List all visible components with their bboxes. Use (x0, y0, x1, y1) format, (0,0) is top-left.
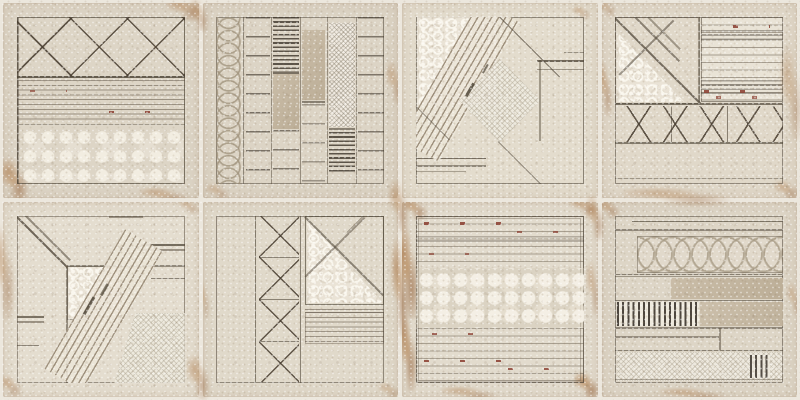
barcode-h-patch (416, 236, 584, 244)
hline-patch (109, 216, 143, 217)
specks-patch (429, 253, 469, 255)
vline-patch (271, 17, 272, 185)
hstripes-patch (17, 80, 185, 124)
tile-pattern-area (615, 216, 783, 384)
hline-patch (17, 345, 39, 347)
vline-patch (255, 216, 257, 384)
rust-patch (602, 3, 618, 17)
vline-patch (300, 216, 302, 384)
grout-rust-patch (187, 352, 211, 400)
rust-patch (602, 58, 614, 117)
hline-patch (615, 274, 783, 276)
hline-patch (259, 299, 299, 301)
dashes-patch (358, 17, 384, 185)
vline-patch (327, 17, 328, 185)
barcode-v-patch (617, 302, 699, 326)
hline-patch (416, 165, 487, 167)
tile-pattern-area (17, 216, 185, 384)
patchwork-tile-collage (0, 0, 800, 400)
specks-patch (508, 368, 575, 370)
taupe-patch (700, 302, 783, 326)
hline-patch (17, 321, 44, 322)
hline-patch (416, 158, 487, 160)
hline-patch (615, 229, 783, 231)
vline-patch (719, 328, 720, 350)
barcode-h-patch (273, 17, 298, 72)
hline-patch (615, 103, 783, 105)
frame-patch (701, 17, 783, 103)
tile-cross-column-lace (203, 202, 399, 397)
tile-triangle-lace-crosses (602, 3, 798, 198)
hline-patch (259, 257, 299, 259)
tile-crosses-stripes-dots (3, 3, 199, 198)
dashes-patch (246, 17, 270, 185)
rust-patch (441, 385, 500, 397)
hline-patch (329, 128, 355, 129)
vline-patch (727, 106, 728, 143)
vline-patch (356, 17, 357, 185)
hstripes-sparse-patch (416, 328, 584, 383)
hline-patch (17, 124, 185, 125)
mesh-patch (329, 23, 355, 127)
specks-patch (30, 90, 67, 92)
vesica-v-patch (216, 17, 241, 185)
specks-patch (424, 222, 508, 224)
specks-patch (424, 360, 516, 363)
grout-rust-patch (0, 220, 16, 320)
tile-pattern-area (17, 17, 185, 185)
hline-patch (151, 278, 185, 280)
rust-patch (386, 58, 398, 105)
dots-patch (18, 126, 183, 182)
hline-patch (615, 336, 719, 338)
dots-big-patch (416, 268, 584, 328)
hline-patch (537, 69, 584, 70)
tile-pattern-area (416, 17, 584, 185)
rust-patch (203, 280, 211, 319)
tile-pattern-area (416, 216, 584, 384)
hline-patch (615, 142, 783, 144)
dashes-patch (273, 130, 298, 185)
tile-stripes-dots-grunge (402, 202, 598, 397)
rust-patch (787, 280, 797, 315)
taupe-patch (273, 74, 298, 129)
specks-patch (517, 231, 576, 233)
frame-patch (637, 236, 783, 273)
barcode-h-patch (329, 132, 355, 172)
hline-patch (17, 76, 185, 78)
hline-patch (17, 316, 44, 318)
rust-patch (179, 202, 199, 214)
hline-patch (305, 309, 384, 310)
rust-patch (586, 257, 598, 316)
hline-patch (632, 221, 783, 223)
tile-pattern-area (216, 216, 384, 384)
hline-patch (615, 379, 783, 380)
rust-patch (206, 182, 229, 198)
hline-patch (615, 327, 783, 329)
grout-rust-patch (189, 0, 210, 32)
hline-patch (615, 350, 783, 352)
hline-patch (259, 341, 299, 343)
tile-pattern-area (216, 17, 384, 185)
frame-patch (305, 216, 384, 305)
hline-patch (615, 300, 783, 301)
hline-patch (615, 178, 783, 179)
tile-vertical-strips (203, 3, 399, 198)
tile-cube-lace-diagonal (3, 202, 199, 397)
rust-patch (660, 387, 728, 397)
grout-rust-patch (780, 40, 800, 140)
grout-rust-patch (624, 186, 736, 206)
rust-patch (378, 381, 398, 397)
tile-pattern-area (615, 17, 783, 185)
specks-patch (109, 111, 176, 113)
specks-patch (432, 333, 493, 335)
taupe-patch (671, 278, 784, 299)
vline-patch (671, 106, 672, 143)
hline-patch (302, 101, 326, 102)
hline-patch (416, 171, 466, 172)
xband-patch (615, 106, 783, 143)
rust-patch (140, 186, 191, 198)
xlattice-patch (17, 17, 185, 77)
vline-patch (539, 60, 540, 141)
taupe-patch (302, 30, 326, 100)
grout-rust-patch (586, 192, 605, 240)
frame-patch (305, 312, 384, 344)
grout-rust-patch (391, 232, 409, 336)
hline-patch (564, 52, 584, 53)
tile-blocks-circles-barcode (602, 202, 798, 397)
vline-patch (300, 17, 301, 185)
tile-diagonal-lace-diamond (402, 3, 598, 198)
barcode-v-patch (750, 355, 770, 378)
vline-patch (243, 17, 244, 185)
dashes-patch (302, 104, 326, 185)
vline-patch (699, 17, 701, 104)
grout-rust-patch (389, 176, 410, 232)
